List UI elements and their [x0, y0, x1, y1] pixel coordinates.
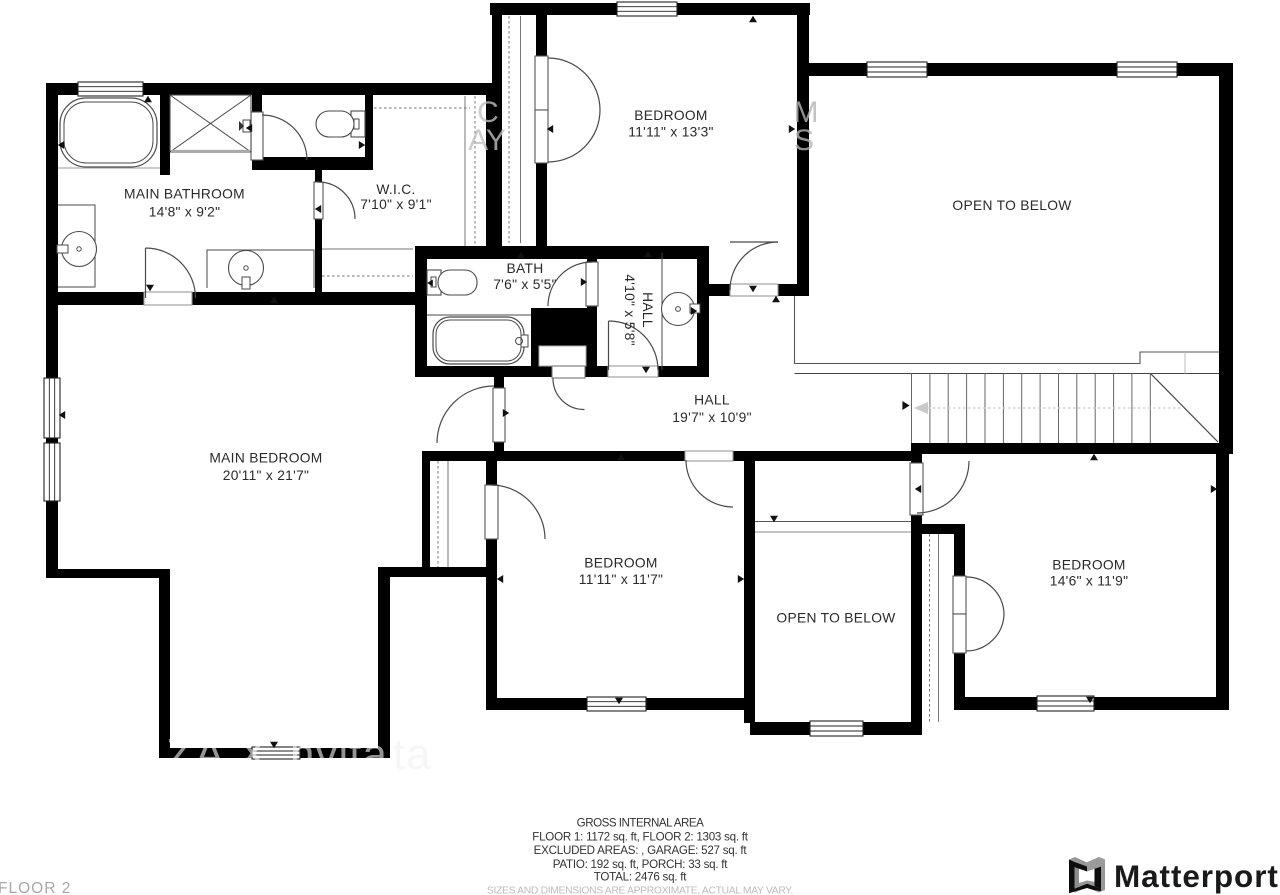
svg-text:19'7" x 10'9": 19'7" x 10'9" [672, 410, 752, 425]
svg-text:FLOOR 2: FLOOR 2 [0, 880, 71, 895]
svg-text:11'11" x 13'3": 11'11" x 13'3" [628, 125, 714, 140]
svg-text:7'6" x 5'5": 7'6" x 5'5" [493, 277, 557, 292]
svg-text:MAIN BEDROOM: MAIN BEDROOM [209, 451, 322, 466]
svg-text:PATIO: 192 sq. ft, PORCH: 33 s: PATIO: 192 sq. ft, PORCH: 33 sq. ft [553, 858, 728, 871]
svg-text:W.I.C.: W.I.C. [376, 182, 415, 197]
svg-text:4'10" x 5'8": 4'10" x 5'8" [622, 274, 637, 346]
svg-text:FLOOR 1: 1172 sq. ft, FLOOR 2:: FLOOR 1: 1172 sq. ft, FLOOR 2: 1303 sq. … [532, 830, 748, 843]
svg-text:nvita: nvita [290, 730, 388, 779]
svg-text:HALL: HALL [640, 292, 655, 328]
svg-text:BEDROOM: BEDROOM [1052, 558, 1125, 573]
svg-text:7'10" x 9'1": 7'10" x 9'1" [360, 197, 432, 212]
svg-text:S: S [794, 124, 814, 157]
svg-text:HALL: HALL [694, 393, 730, 408]
svg-text:SIZES AND DIMENSIONS ARE APPRO: SIZES AND DIMENSIONS ARE APPROXIMATE, AC… [487, 886, 793, 895]
svg-text:11'11" x 11'7": 11'11" x 11'7" [579, 572, 663, 587]
svg-text:Matterport: Matterport [1114, 858, 1279, 894]
svg-text:OPEN TO BELOW: OPEN TO BELOW [776, 611, 895, 626]
svg-text:BATH: BATH [507, 261, 544, 276]
svg-text:ZA X: ZA X [166, 730, 269, 779]
svg-text:20'11" x 21'7": 20'11" x 21'7" [223, 468, 310, 483]
svg-text:GROSS INTERNAL AREA: GROSS INTERNAL AREA [577, 816, 704, 829]
svg-text:OPEN TO BELOW: OPEN TO BELOW [952, 198, 1071, 213]
svg-text:BEDROOM: BEDROOM [584, 556, 657, 571]
svg-text:BEDROOM: BEDROOM [634, 108, 707, 123]
svg-text:ta: ta [393, 730, 432, 779]
svg-text:14'8" x 9'2": 14'8" x 9'2" [149, 205, 221, 220]
svg-text:AY: AY [468, 124, 506, 157]
svg-text:EXCLUDED AREAS: , GARAGE: 527: EXCLUDED AREAS: , GARAGE: 527 sq. ft [534, 844, 748, 857]
svg-text:MAIN BATHROOM: MAIN BATHROOM [124, 187, 245, 202]
svg-text:TOTAL: 2476 sq. ft: TOTAL: 2476 sq. ft [594, 871, 687, 884]
svg-text:14'6" x 11'9": 14'6" x 11'9" [1050, 574, 1129, 589]
